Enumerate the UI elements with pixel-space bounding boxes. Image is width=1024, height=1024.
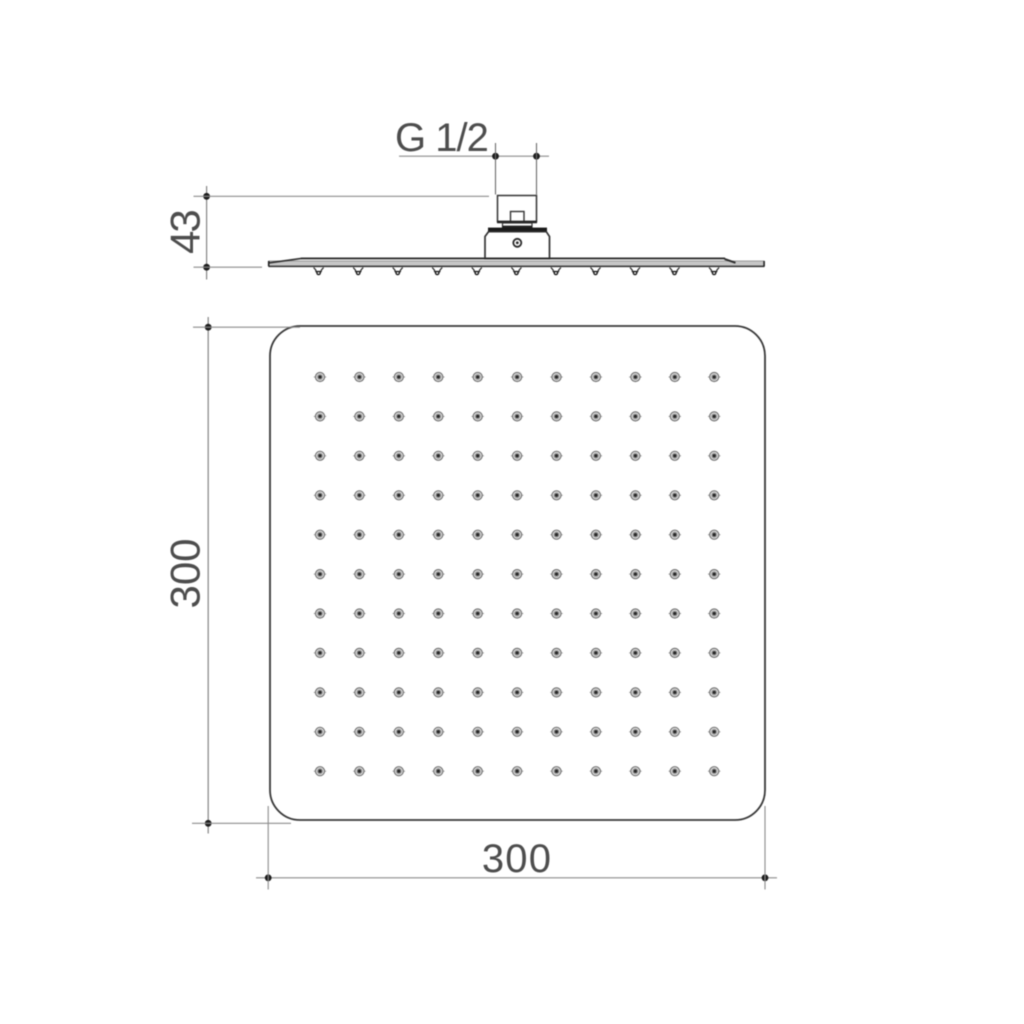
svg-text:43: 43 <box>162 211 209 254</box>
svg-text:G 1/2: G 1/2 <box>395 116 488 160</box>
svg-text:300: 300 <box>482 837 552 881</box>
svg-text:300: 300 <box>162 538 209 608</box>
